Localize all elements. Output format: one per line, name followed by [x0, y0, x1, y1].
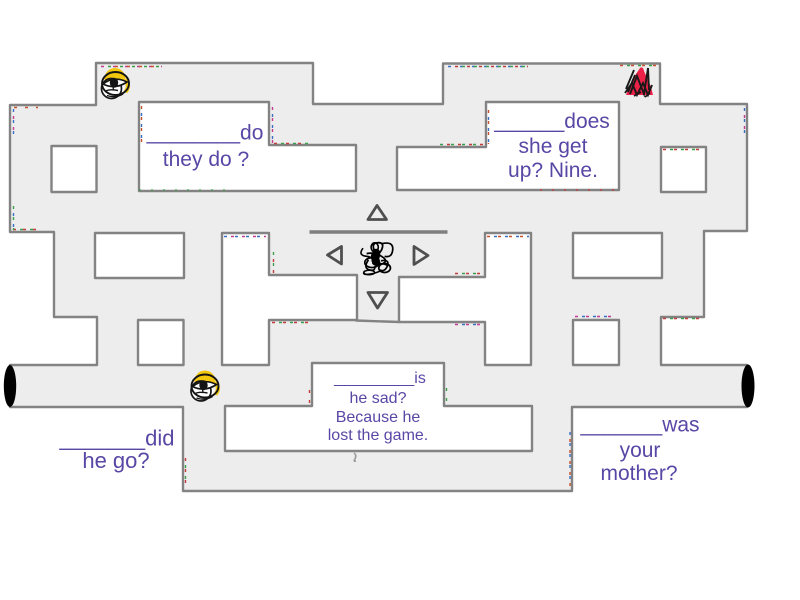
- svg-text:your: your: [620, 439, 661, 462]
- svg-text:mother?: mother?: [600, 462, 677, 485]
- svg-text:________do: ________do: [146, 122, 264, 145]
- svg-text:_________is: _________is: [333, 370, 426, 387]
- svg-text:_______was: _______was: [579, 414, 699, 437]
- svg-text:______does: ______does: [493, 110, 610, 133]
- svg-text:up? Nine.: up? Nine.: [508, 159, 598, 182]
- svg-text:she get: she get: [519, 135, 588, 158]
- svg-text:they do ?: they do ?: [163, 148, 249, 171]
- svg-text:_______did: _______did: [58, 426, 174, 451]
- svg-text:he go?: he go?: [82, 448, 149, 473]
- svg-text:he sad?: he sad?: [350, 390, 407, 407]
- svg-text:Because he: Because he: [336, 409, 421, 426]
- svg-text:lost the game.: lost the game.: [328, 427, 429, 444]
